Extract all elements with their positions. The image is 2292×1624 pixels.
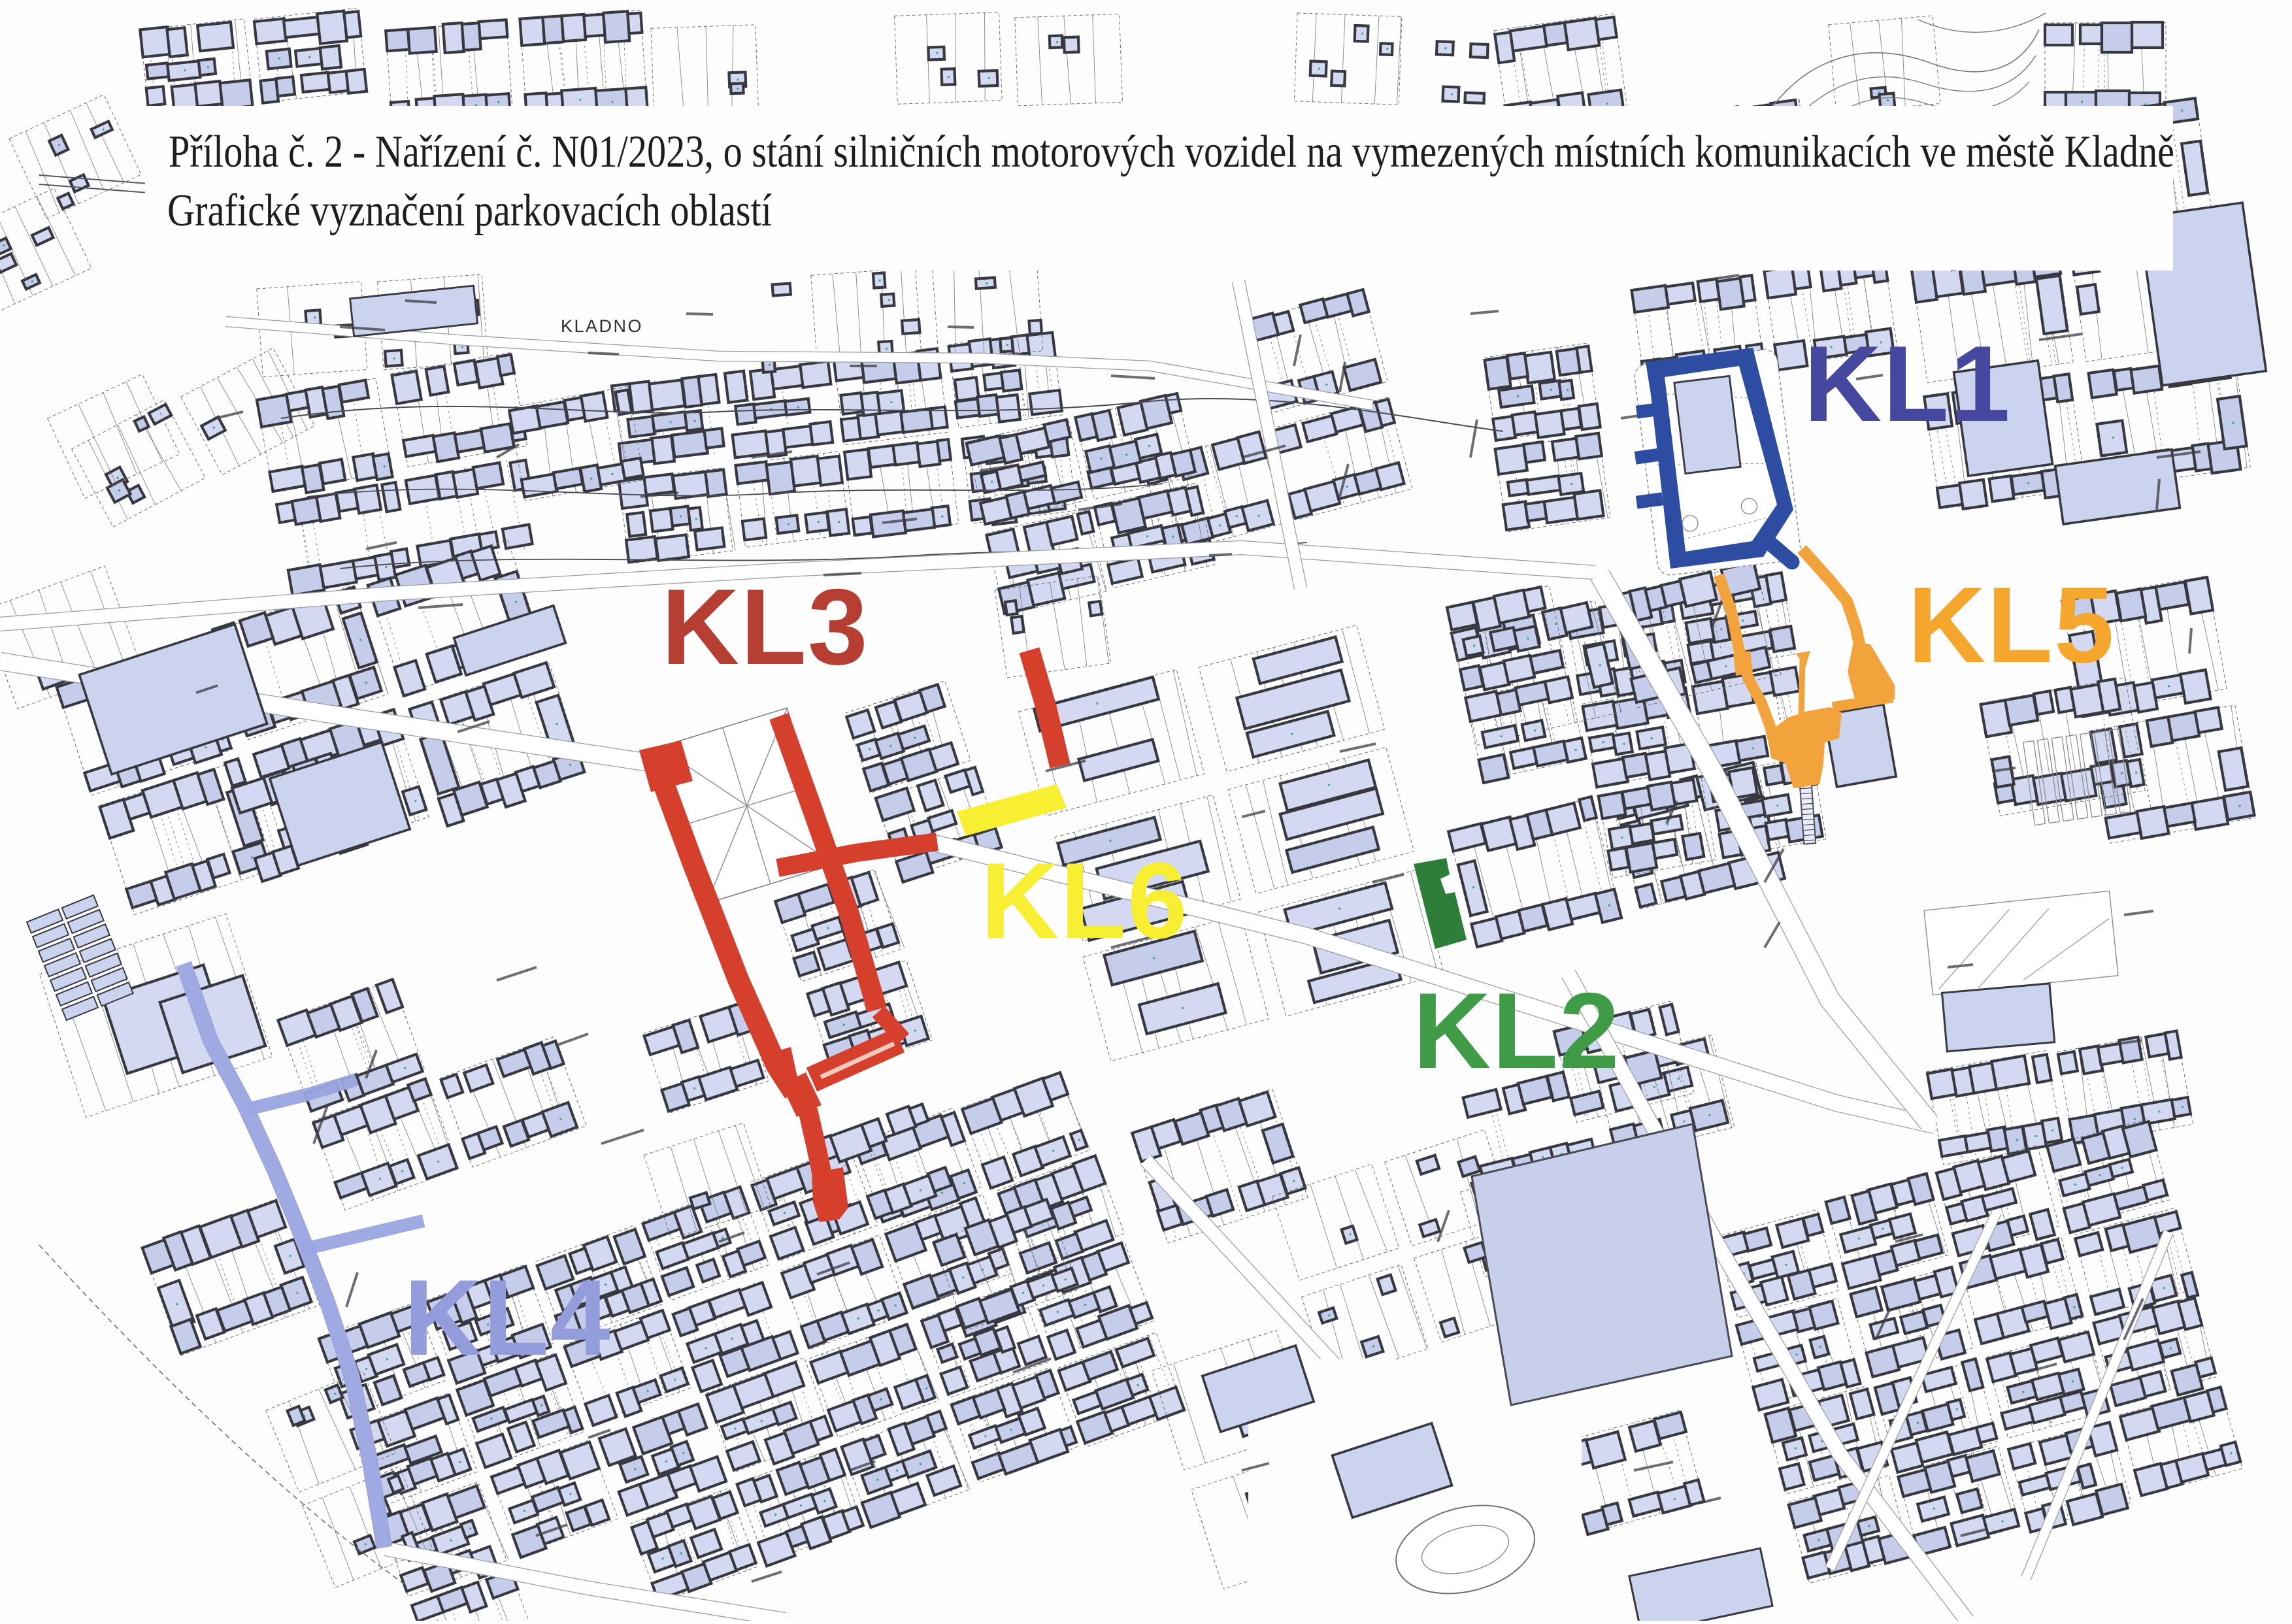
- svg-text:Grafické vyznačení parkovacích: Grafické vyznačení parkovacích oblastí: [167, 186, 772, 236]
- svg-text:KL4: KL4: [404, 1257, 612, 1378]
- svg-text:KLADNO: KLADNO: [561, 316, 643, 336]
- svg-text:KL1: KL1: [1804, 323, 2012, 444]
- svg-text:KL5: KL5: [1908, 565, 2116, 685]
- svg-text:KL3: KL3: [661, 567, 869, 687]
- svg-text:KL2: KL2: [1413, 970, 1621, 1091]
- svg-text:KL6: KL6: [981, 840, 1189, 961]
- svg-text:Příloha č. 2 - Nařízení č. N0: Příloha č. 2 - Nařízení č. N01/2023, o s…: [169, 127, 2174, 177]
